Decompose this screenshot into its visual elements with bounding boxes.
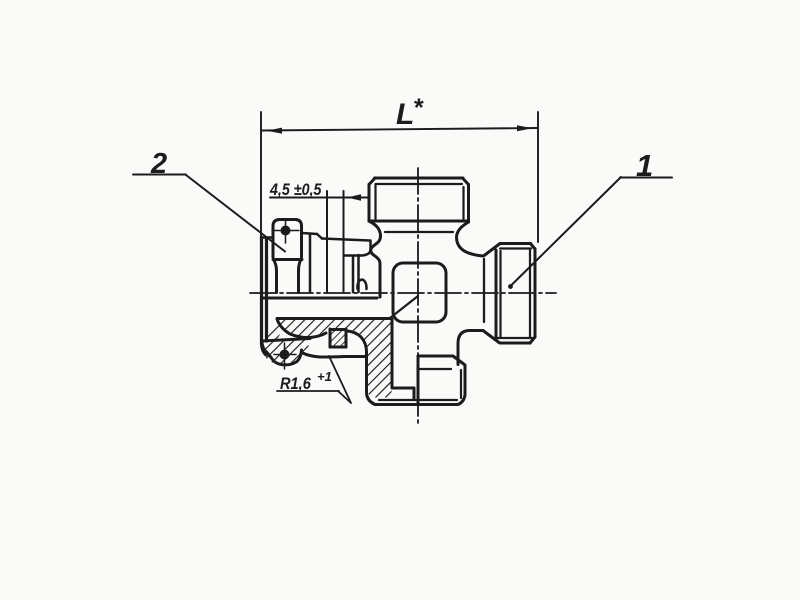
svg-text:+1: +1 bbox=[317, 369, 332, 384]
svg-text:4,5 ±0,5: 4,5 ±0,5 bbox=[269, 181, 322, 199]
svg-text:L: L bbox=[396, 98, 414, 131]
svg-text:*: * bbox=[413, 94, 424, 122]
svg-text:1: 1 bbox=[636, 148, 653, 183]
svg-text:2: 2 bbox=[150, 148, 167, 180]
svg-text:R1,6: R1,6 bbox=[280, 375, 311, 393]
